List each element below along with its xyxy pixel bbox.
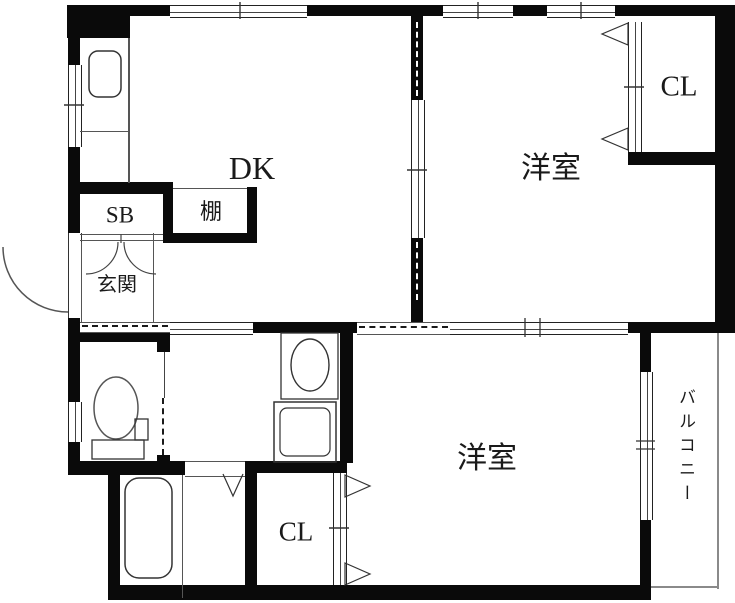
room-dk-label: DK xyxy=(229,152,275,184)
shoebox-door-arc-icon xyxy=(86,242,118,274)
closet-bottom-label: CL xyxy=(279,519,314,546)
entrance-door-arc-icon xyxy=(3,247,68,312)
washing-machine-pan-icon xyxy=(274,402,336,462)
shoebox-door-arc-icon xyxy=(124,242,156,274)
bifold-door-arrow-icon xyxy=(345,475,370,497)
room-western-bottom-label: 洋室 xyxy=(457,444,517,474)
toilet-base-icon xyxy=(92,440,144,459)
bifold-door-arrow-icon xyxy=(345,563,370,585)
bathtub-icon xyxy=(125,478,172,578)
toilet-icon xyxy=(94,377,138,439)
shoebox-label: SB xyxy=(106,204,134,227)
balcony-label: バルコニー xyxy=(677,388,694,508)
room-western-top-label: 洋室 xyxy=(521,154,581,184)
shelf-label: 棚 xyxy=(200,201,222,223)
kitchen-sink-icon xyxy=(89,51,121,97)
washing-machine-icon xyxy=(280,408,330,456)
bifold-door-arrow-icon xyxy=(602,128,628,150)
washbasin-icon xyxy=(291,339,329,391)
bath-door-icon xyxy=(223,474,243,496)
toilet-tank-icon xyxy=(135,419,148,440)
closet-top-label: CL xyxy=(660,73,697,102)
fixtures-layer xyxy=(0,0,735,603)
entrance-label: 玄関 xyxy=(97,275,137,295)
floorplan: DK 洋室 洋室 CL CL SB 棚 玄関 バルコニー xyxy=(0,0,735,603)
bifold-door-arrow-icon xyxy=(602,23,628,45)
